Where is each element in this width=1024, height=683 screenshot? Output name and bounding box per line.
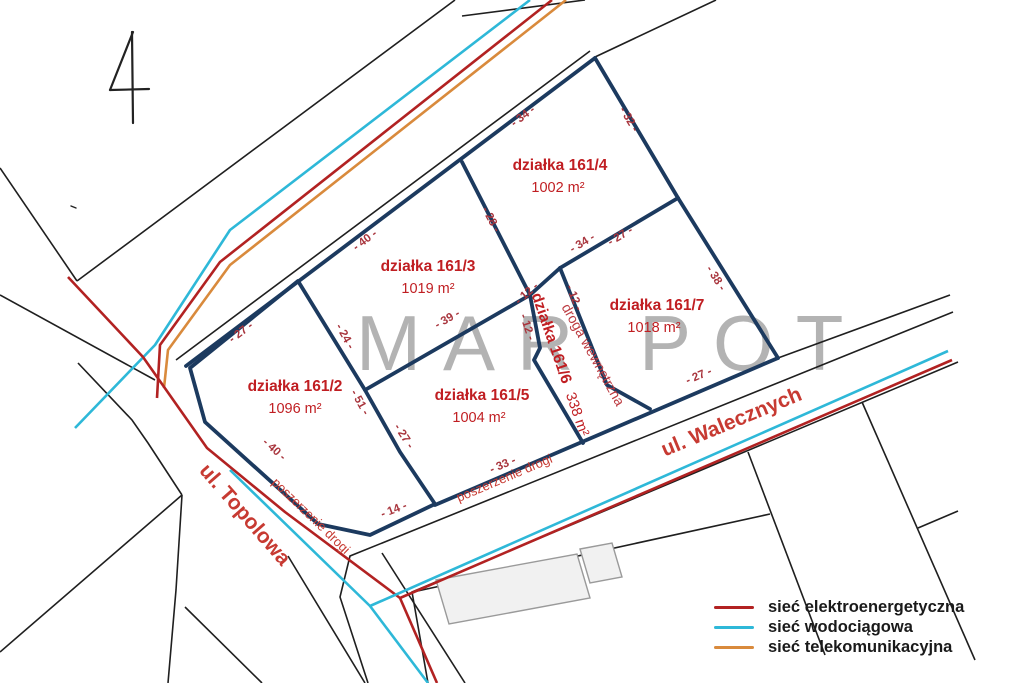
water-line <box>75 0 530 428</box>
plot-161-7-name: działka 161/7 <box>610 297 705 314</box>
legend-telecom-label: sieć telekomunikacyjna <box>768 638 952 657</box>
glyph-stroke <box>110 89 149 90</box>
telecom-line-sample <box>714 646 754 649</box>
parcel-line <box>0 495 182 652</box>
plot-161-2-name: działka 161/2 <box>248 378 343 395</box>
dimension-label: - 40 - <box>260 436 288 463</box>
cadastral-plan-page: MAR POT <box>0 0 1024 683</box>
map-tick <box>71 206 76 208</box>
dimension-label: - 32 - <box>617 105 641 134</box>
dimension-label: - 27 - <box>684 365 714 387</box>
road-labels: ul. Topolowa ul. Walecznych droga wewnęt… <box>195 301 805 571</box>
sheet-number-glyph <box>71 32 149 208</box>
plot-161-5-name: działka 161/5 <box>435 387 530 404</box>
parcel-line <box>462 0 585 16</box>
road-edge-line <box>288 556 365 683</box>
plot-161-3-area: 1019 m² <box>401 281 454 297</box>
building-main <box>436 554 590 624</box>
legend-row-power: sieć elektroenergetyczna <box>714 597 964 617</box>
dimension-label: - 38 - <box>703 264 727 293</box>
boundary-line <box>365 295 530 390</box>
plot-labels: działka 161/2 1096 m² działka 161/3 1019… <box>248 157 705 439</box>
power-line-sample <box>714 606 754 609</box>
dimension-label: - 28 - <box>479 205 502 234</box>
road-edge-line <box>168 495 182 683</box>
parcel-line <box>595 0 716 57</box>
building-footprint <box>436 543 622 624</box>
plot-161-4-area: 1002 m² <box>531 180 584 196</box>
power-line <box>157 0 552 398</box>
telecom-line <box>164 0 566 388</box>
plot-161-3-name: działka 161/3 <box>381 258 476 275</box>
building-annex <box>580 543 622 583</box>
plot-161-4-name: działka 161/4 <box>513 157 608 174</box>
plot-161-7-area: 1018 m² <box>627 320 680 336</box>
dimension-label: - 34 - <box>568 231 597 255</box>
legend-water-label: sieć wodociągowa <box>768 618 913 637</box>
parcel-line <box>0 168 77 281</box>
power-line <box>68 277 952 598</box>
boundary-line <box>678 198 778 358</box>
legend-row-water: sieć wodociągowa <box>714 617 964 637</box>
plot-161-2-area: 1096 m² <box>268 401 321 417</box>
dimension-label: - 39 - <box>433 307 462 331</box>
glyph-stroke <box>110 32 133 90</box>
parcel-line <box>918 511 958 528</box>
glyph-stroke <box>132 32 133 123</box>
road-edge-line <box>77 0 455 281</box>
legend-power-label: sieć elektroenergetyczna <box>768 598 964 617</box>
parcel-line <box>185 607 262 683</box>
water-line-sample <box>714 626 754 629</box>
legend-row-telecom: sieć telekomunikacyjna <box>714 637 964 657</box>
plot-map: działka 161/2 1096 m² działka 161/3 1019… <box>0 0 1024 683</box>
road-edge-line <box>78 363 182 495</box>
plot-161-5-area: 1004 m² <box>452 410 505 426</box>
utilities-legend: sieć elektroenergetyczna sieć wodociągow… <box>714 597 964 657</box>
dimension-label: - 27 - <box>606 224 635 248</box>
